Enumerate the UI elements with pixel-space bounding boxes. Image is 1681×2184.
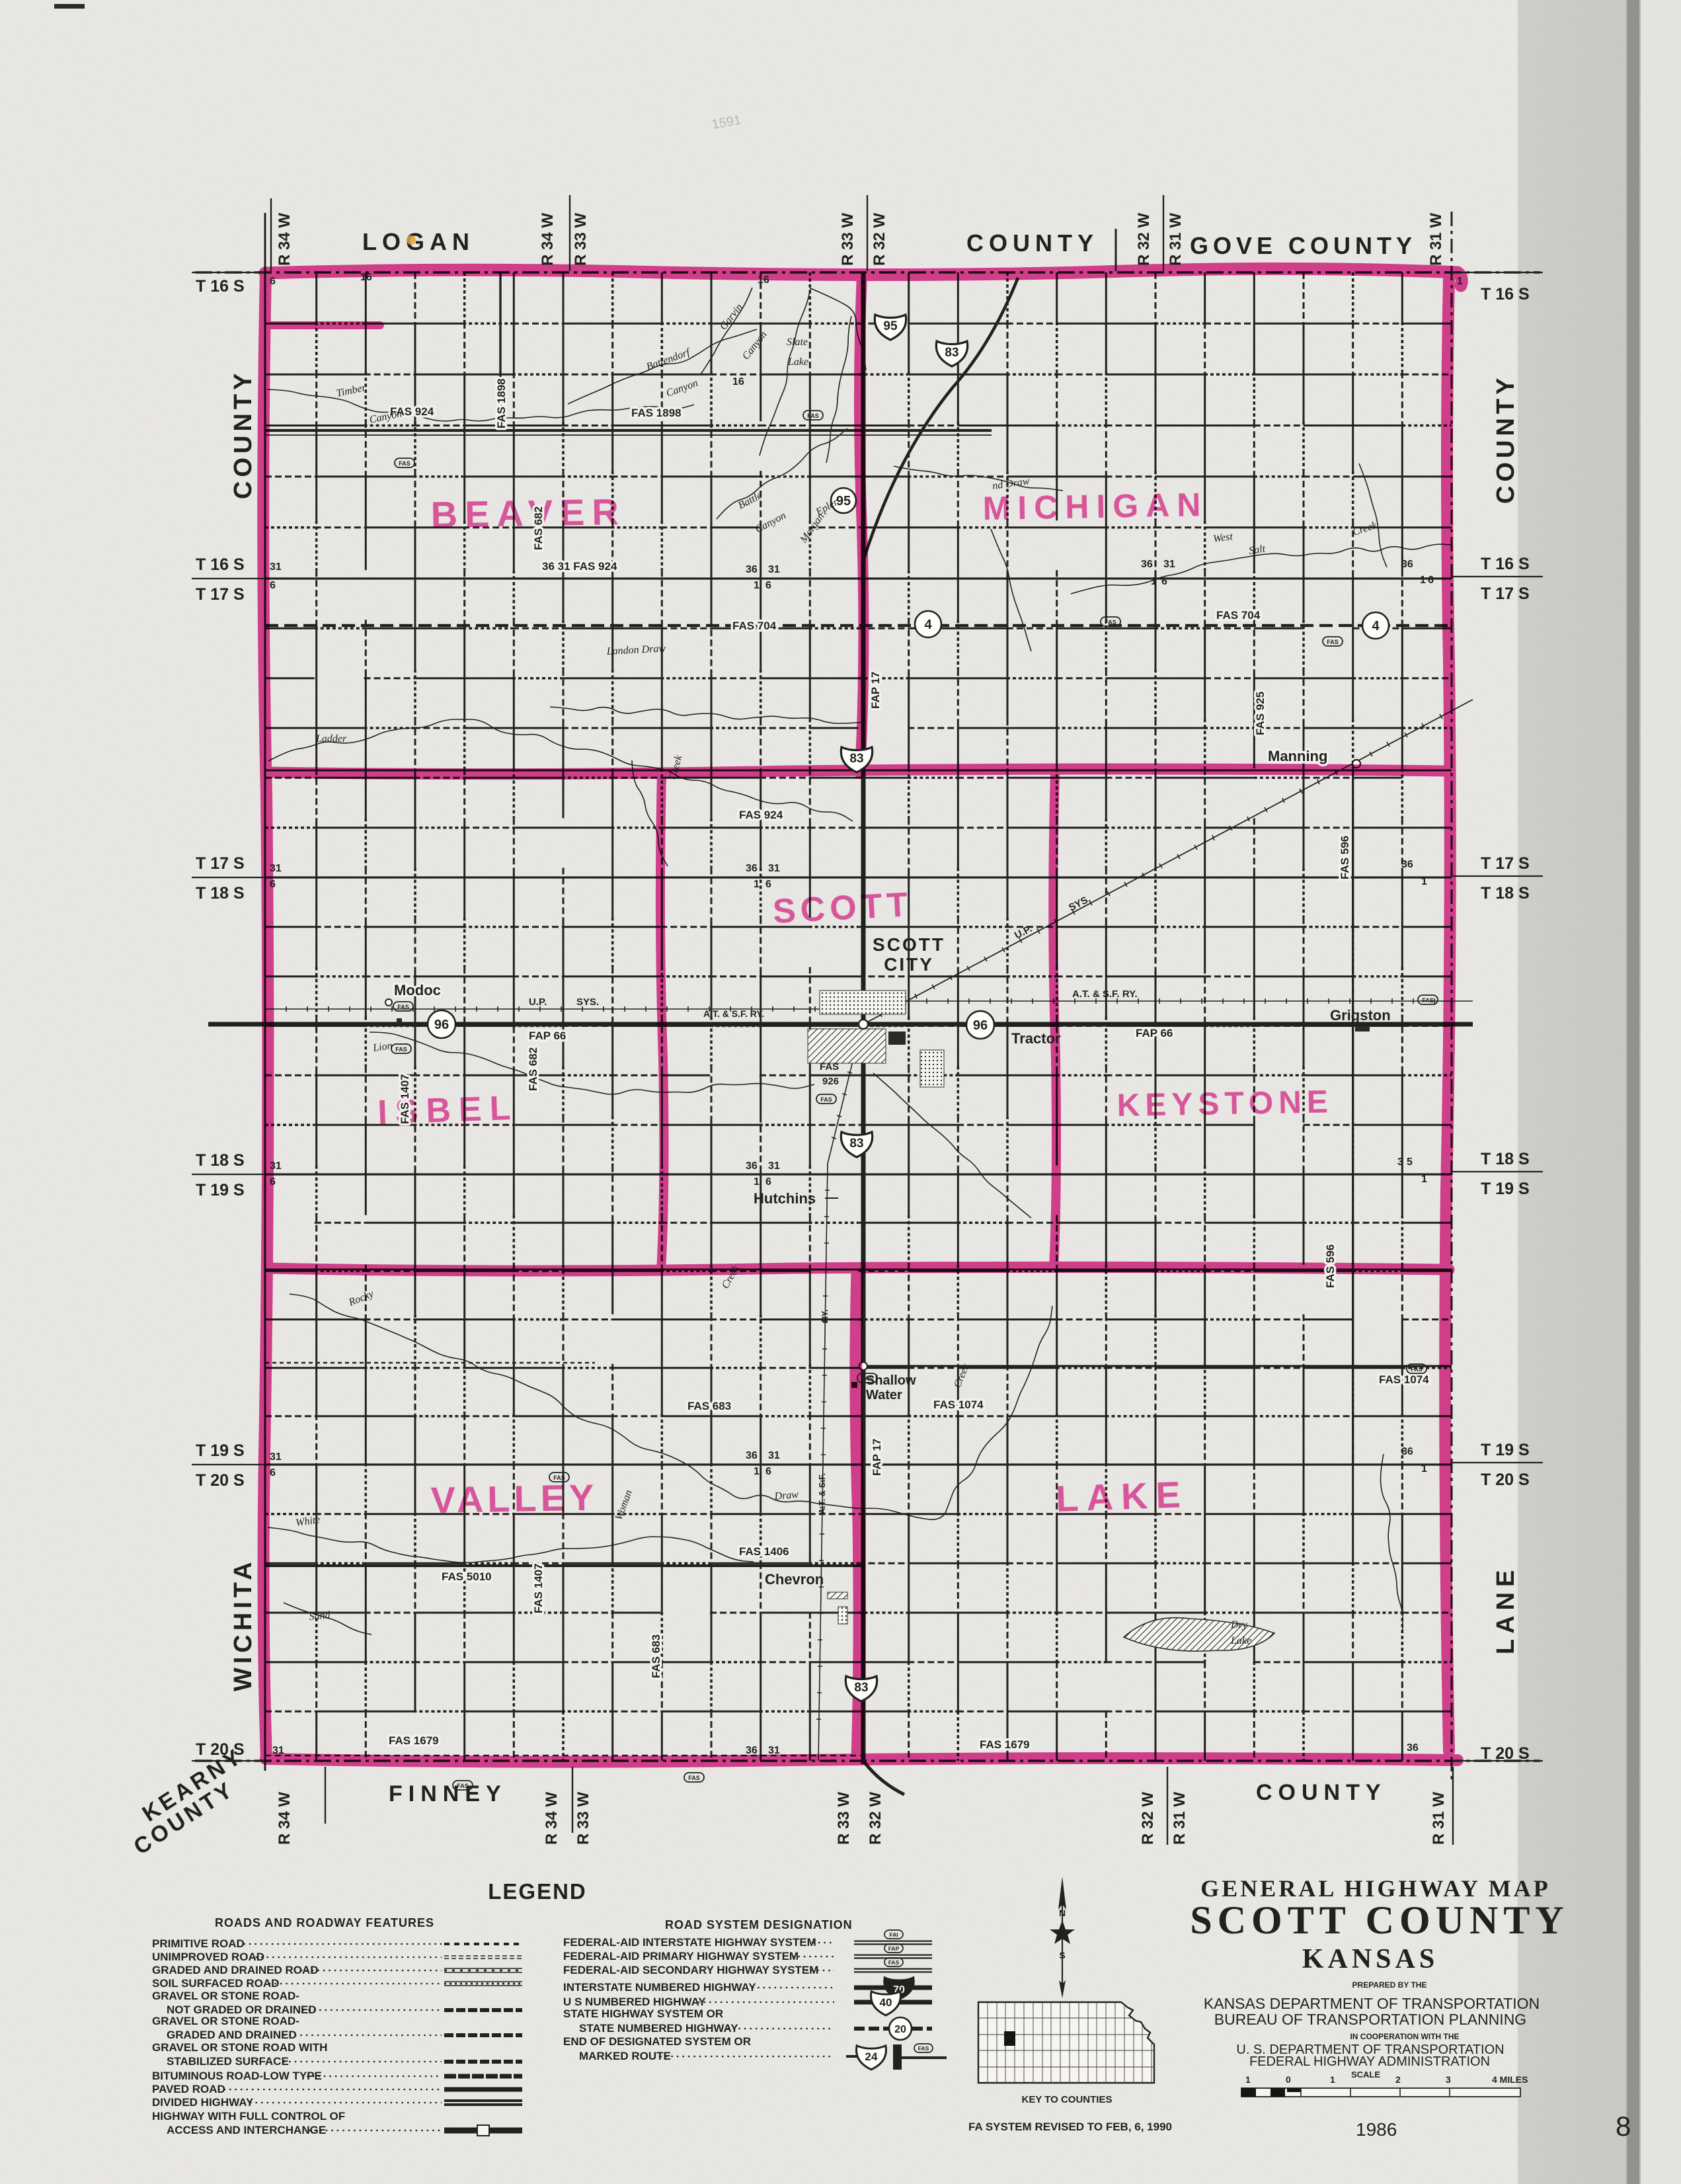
- svg-text:1: 1: [1330, 2074, 1335, 2085]
- svg-text:PREPARED BY THE: PREPARED BY THE: [1352, 1980, 1427, 1990]
- svg-text:KANSAS: KANSAS: [1302, 1944, 1438, 1974]
- svg-text:CITY: CITY: [884, 954, 934, 975]
- svg-text:HIGHWAY WITH FULL CONTROL OF: HIGHWAY WITH FULL CONTROL OF: [152, 2110, 345, 2123]
- svg-text:1: 1: [1421, 876, 1427, 887]
- svg-text:FAS 1074: FAS 1074: [1379, 1373, 1429, 1386]
- svg-text:SCOTT COUNTY: SCOTT COUNTY: [1190, 1898, 1569, 1942]
- svg-text:SYS.: SYS.: [576, 996, 599, 1008]
- svg-text:R 34 W: R 34 W: [539, 213, 557, 266]
- svg-text:Modoc: Modoc: [394, 982, 441, 998]
- svg-text:6: 6: [1428, 575, 1434, 586]
- svg-text:COUNTY: COUNTY: [966, 229, 1099, 257]
- svg-text:FAS 924: FAS 924: [739, 809, 783, 821]
- svg-text:36: 36: [746, 1160, 758, 1172]
- svg-text:T 20 S: T 20 S: [1481, 1744, 1530, 1763]
- svg-text:36: 36: [1401, 1446, 1413, 1457]
- svg-text:T 16 S: T 16 S: [196, 555, 245, 574]
- svg-text:16: 16: [758, 274, 769, 286]
- svg-text:SOIL SURFACED ROAD: SOIL SURFACED ROAD: [152, 1977, 279, 1990]
- svg-text:T 17 S: T 17 S: [1481, 854, 1530, 873]
- svg-text:FAS 925: FAS 925: [1254, 692, 1267, 735]
- svg-text:Water: Water: [866, 1388, 902, 1402]
- svg-text:96: 96: [434, 1018, 449, 1032]
- svg-text:FAS 683: FAS 683: [687, 1400, 731, 1412]
- svg-text:36 31 FAS 924: 36 31 FAS 924: [542, 560, 617, 573]
- svg-text:DIVIDED HIGHWAY: DIVIDED HIGHWAY: [152, 2096, 254, 2109]
- svg-text:GRAVEL OR STONE ROAD WITH: GRAVEL OR STONE ROAD WITH: [152, 2041, 327, 2054]
- svg-text:T 17 S: T 17 S: [1481, 585, 1530, 603]
- svg-text:FAS 704: FAS 704: [1216, 609, 1261, 622]
- svg-text:SCOTT: SCOTT: [873, 934, 945, 955]
- svg-text:LAKE: LAKE: [1055, 1473, 1189, 1519]
- svg-text:Draw: Draw: [773, 1489, 799, 1502]
- svg-text:4 MILES: 4 MILES: [1492, 2074, 1528, 2085]
- svg-text:T 18 S: T 18 S: [1481, 1150, 1530, 1168]
- svg-text:1: 1: [1457, 276, 1463, 287]
- svg-text:GRADED AND DRAINED: GRADED AND DRAINED: [167, 2029, 297, 2041]
- svg-text:T 18 S: T 18 S: [196, 884, 245, 903]
- svg-text:36: 36: [1141, 559, 1153, 570]
- svg-text:U S NUMBERED HIGHWAY: U S NUMBERED HIGHWAY: [563, 1996, 706, 2008]
- svg-text:R 34 W: R 34 W: [543, 1792, 561, 1845]
- svg-text:95: 95: [883, 319, 898, 333]
- svg-text:1: 1: [754, 879, 760, 890]
- svg-text:BUREAU OF TRANSPORTATION PL: BUREAU OF TRANSPORTATION PLANNING: [1214, 2011, 1526, 2028]
- svg-text:6: 6: [270, 1467, 276, 1478]
- svg-text:FAS: FAS: [918, 2045, 929, 2052]
- svg-text:VALLEY: VALLEY: [430, 1476, 598, 1521]
- svg-text:T 20 S: T 20 S: [1481, 1471, 1530, 1489]
- svg-text:STABILIZED SURFACE: STABILIZED SURFACE: [167, 2055, 289, 2068]
- svg-text:T 20 S: T 20 S: [196, 1740, 245, 1759]
- svg-text:20: 20: [894, 2024, 906, 2035]
- svg-text:31: 31: [270, 1160, 282, 1172]
- svg-text:SCOTT: SCOTT: [772, 885, 914, 931]
- svg-text:RY.: RY.: [820, 1309, 830, 1322]
- svg-text:3: 3: [1446, 2074, 1451, 2085]
- svg-text:FAP 17: FAP 17: [871, 1439, 883, 1476]
- svg-text:1: 1: [1245, 2074, 1251, 2085]
- svg-text:FAS 596: FAS 596: [1324, 1244, 1337, 1288]
- svg-text:STATE HIGHWAY SYSTEM OR: STATE HIGHWAY SYSTEM OR: [563, 2007, 723, 2020]
- svg-text:1: 1: [1420, 575, 1426, 586]
- svg-text:FEDERAL-AID PRIMARY HIGHWAY SY: FEDERAL-AID PRIMARY HIGHWAY SYSTEM: [563, 1950, 799, 1962]
- svg-text:FAS: FAS: [688, 1775, 700, 1781]
- svg-text:T 19 S: T 19 S: [1481, 1180, 1530, 1198]
- svg-text:FAS: FAS: [395, 1046, 407, 1053]
- svg-text:31: 31: [768, 1160, 780, 1172]
- svg-text:MICHIGAN: MICHIGAN: [982, 486, 1208, 527]
- svg-text:FAP 66: FAP 66: [1136, 1027, 1173, 1039]
- svg-text:6: 6: [765, 1466, 771, 1477]
- svg-text:Lake: Lake: [787, 356, 808, 368]
- svg-text:FAS 5010: FAS 5010: [442, 1570, 492, 1583]
- svg-text:GRAVEL OR STONE ROAD-: GRAVEL OR STONE ROAD-: [152, 1990, 299, 2002]
- svg-text:COUNTY: COUNTY: [229, 370, 257, 499]
- svg-text:ROADS AND ROADWAY FEATURES: ROADS AND ROADWAY FEATURES: [215, 1916, 434, 1929]
- svg-text:6: 6: [270, 1176, 276, 1188]
- svg-text:R 33 W: R 33 W: [572, 213, 590, 266]
- svg-text:FAI: FAI: [889, 1931, 898, 1938]
- svg-text:R 33 W: R 33 W: [835, 1792, 853, 1845]
- svg-text:31: 31: [768, 1450, 780, 1461]
- svg-text:31: 31: [768, 863, 780, 874]
- svg-text:BITUMINOUS ROAD-LOW TYPE: BITUMINOUS ROAD-LOW TYPE: [152, 2070, 322, 2082]
- svg-text:31: 31: [1163, 559, 1175, 570]
- svg-text:31: 31: [270, 863, 282, 874]
- svg-text:Grigston: Grigston: [1330, 1007, 1391, 1024]
- svg-text:ROAD SYSTEM DESIGNATION: ROAD SYSTEM DESIGNATION: [665, 1918, 853, 1931]
- svg-text:FAS 1679: FAS 1679: [980, 1738, 1030, 1751]
- svg-text:R 32 W: R 32 W: [867, 1792, 884, 1845]
- svg-text:Salt: Salt: [1248, 544, 1267, 557]
- svg-text:24: 24: [865, 2050, 878, 2063]
- svg-text:83: 83: [945, 346, 958, 360]
- svg-text:36: 36: [746, 1745, 758, 1756]
- svg-text:R 32 W: R 32 W: [1139, 1792, 1157, 1845]
- svg-text:FAS 682: FAS 682: [527, 1047, 539, 1091]
- svg-text:UNIMPROVED ROAD: UNIMPROVED ROAD: [152, 1951, 264, 1963]
- svg-text:FAS 1406: FAS 1406: [739, 1545, 789, 1558]
- svg-text:36: 36: [1407, 1742, 1419, 1754]
- svg-text:8: 8: [1616, 2111, 1631, 2142]
- svg-text:FAS: FAS: [820, 1096, 832, 1103]
- svg-text:Sand: Sand: [309, 1609, 331, 1623]
- svg-text:1986: 1986: [1356, 2119, 1397, 2140]
- svg-text:R 31 W: R 31 W: [1427, 213, 1445, 266]
- svg-text:KEY TO COUNTIES: KEY TO COUNTIES: [1022, 2094, 1113, 2105]
- svg-text:FAS: FAS: [861, 1375, 873, 1382]
- svg-text:31: 31: [270, 1451, 282, 1463]
- svg-text:FAS: FAS: [820, 1061, 839, 1072]
- svg-text:N: N: [1059, 1908, 1066, 1918]
- svg-text:6: 6: [270, 879, 276, 890]
- svg-text:40: 40: [880, 1996, 892, 2009]
- svg-text:COUNTY: COUNTY: [1492, 374, 1520, 504]
- svg-text:U.P.: U.P.: [529, 996, 547, 1008]
- svg-text:31: 31: [270, 561, 282, 573]
- svg-text:4: 4: [1372, 619, 1380, 633]
- svg-text:R 34 W: R 34 W: [276, 213, 293, 266]
- svg-text:1: 1: [754, 580, 760, 591]
- svg-text:FAP: FAP: [888, 1945, 900, 1952]
- svg-text:36: 36: [746, 863, 758, 874]
- svg-text:1: 1: [1151, 576, 1157, 587]
- svg-text:T 16 S: T 16 S: [1481, 285, 1530, 303]
- svg-text:Ladder: Ladder: [315, 733, 347, 745]
- svg-text:PAVED ROAD: PAVED ROAD: [152, 2083, 225, 2095]
- svg-text:T 17 S: T 17 S: [196, 854, 245, 873]
- svg-text:END OF DESIGNATED SYSTEM OR: END OF DESIGNATED SYSTEM OR: [563, 2035, 751, 2048]
- svg-text:16: 16: [732, 376, 744, 387]
- svg-text:FAS 1407: FAS 1407: [532, 1563, 545, 1613]
- svg-text:3: 3: [1397, 1156, 1403, 1168]
- svg-text:T 20 S: T 20 S: [196, 1471, 245, 1490]
- svg-text:S: S: [1059, 1950, 1065, 1961]
- svg-text:6: 6: [1161, 576, 1167, 587]
- svg-text:INTERSTATE NUMBERED HIGHWAY: INTERSTATE NUMBERED HIGHWAY: [563, 1981, 756, 1994]
- svg-text:T 18 S: T 18 S: [1481, 884, 1530, 903]
- svg-text:Shallow: Shallow: [866, 1373, 916, 1388]
- svg-text:FAS: FAS: [807, 413, 819, 419]
- svg-text:1: 1: [754, 1466, 760, 1477]
- svg-text:T 16 S: T 16 S: [1481, 555, 1530, 573]
- svg-text:36: 36: [746, 1450, 758, 1461]
- svg-text:GENERAL HIGHWAY MAP: GENERAL HIGHWAY MAP: [1200, 1875, 1550, 1902]
- svg-text:R 31 W: R 31 W: [1167, 213, 1185, 266]
- svg-text:FAS: FAS: [1411, 1366, 1423, 1373]
- svg-text:FAS: FAS: [1422, 997, 1434, 1004]
- svg-text:T 19 S: T 19 S: [196, 1181, 245, 1199]
- svg-text:83: 83: [849, 752, 863, 766]
- svg-text:36: 36: [1401, 859, 1413, 870]
- svg-text:GRADED AND DRAINED ROAD: GRADED AND DRAINED ROAD: [152, 1964, 319, 1976]
- svg-text:1: 1: [1421, 1463, 1427, 1475]
- svg-text:FA SYSTEM REVISED TO FEB, 6, 1: FA SYSTEM REVISED TO FEB, 6, 1990: [968, 2121, 1172, 2133]
- svg-text:FAS: FAS: [397, 1004, 409, 1010]
- svg-text:6: 6: [270, 276, 276, 287]
- svg-text:STATE NUMBERED HIGHWAY: STATE NUMBERED HIGHWAY: [579, 2022, 738, 2035]
- svg-text:6: 6: [765, 580, 771, 591]
- svg-text:FAS 683: FAS 683: [650, 1635, 662, 1678]
- svg-text:4: 4: [924, 618, 932, 632]
- svg-text:FAP 17: FAP 17: [869, 672, 882, 709]
- svg-text:FAS 704: FAS 704: [732, 620, 777, 632]
- svg-text:FEDERAL HIGHWAY ADMINISTRATI: FEDERAL HIGHWAY ADMINISTRATION: [1249, 2054, 1490, 2069]
- svg-text:96: 96: [973, 1018, 988, 1033]
- svg-text:FAS: FAS: [1105, 619, 1116, 626]
- svg-text:6: 6: [765, 1176, 771, 1188]
- svg-text:Lake: Lake: [1230, 1635, 1251, 1646]
- svg-text:1: 1: [754, 1176, 760, 1188]
- svg-text:FAS 1898: FAS 1898: [495, 378, 508, 428]
- svg-text:R 34 W: R 34 W: [276, 1792, 293, 1845]
- svg-text:IN COOPERATION WITH THE: IN COOPERATION WITH THE: [1350, 2032, 1459, 2041]
- svg-text:Dry: Dry: [1230, 1619, 1248, 1631]
- svg-text:LANE: LANE: [1492, 1565, 1520, 1654]
- svg-text:6: 6: [270, 580, 276, 591]
- svg-text:Manning: Manning: [1268, 748, 1327, 764]
- svg-text:Tractor: Tractor: [1011, 1030, 1061, 1047]
- svg-text:Hutchins: Hutchins: [754, 1190, 816, 1207]
- svg-text:FAS 1898: FAS 1898: [631, 407, 682, 419]
- svg-text:FINNEY: FINNEY: [389, 1781, 507, 1806]
- svg-text:LEGEND: LEGEND: [488, 1879, 587, 1904]
- svg-text:A.T. & S.F. RY.: A.T. & S.F. RY.: [703, 1008, 764, 1019]
- svg-text:Chevron: Chevron: [765, 1571, 824, 1588]
- svg-text:T 19 S: T 19 S: [1481, 1441, 1530, 1459]
- svg-text:KEYSTONE: KEYSTONE: [1116, 1084, 1333, 1123]
- svg-text:R 31 W: R 31 W: [1430, 1792, 1448, 1845]
- svg-text:MARKED ROUTE: MARKED ROUTE: [579, 2050, 671, 2062]
- svg-text:FAS: FAS: [553, 1475, 565, 1481]
- svg-text:A.T. & S.F. RY.: A.T. & S.F. RY.: [1072, 989, 1138, 1000]
- svg-text:R 31 W: R 31 W: [1171, 1792, 1189, 1845]
- svg-text:R 32 W: R 32 W: [871, 213, 888, 266]
- svg-text:GOVE COUNTY: GOVE COUNTY: [1190, 232, 1417, 259]
- svg-text:KANSAS DEPARTMENT OF TRANSP: KANSAS DEPARTMENT OF TRANSPORTATION: [1204, 1995, 1540, 2012]
- svg-text:FAS 596: FAS 596: [1339, 836, 1351, 879]
- svg-text:FAS 1407: FAS 1407: [399, 1074, 411, 1124]
- svg-text:FEDERAL-AID SECONDARY HIGHWAY: FEDERAL-AID SECONDARY HIGHWAY SYSTEM: [563, 1964, 818, 1976]
- svg-text:31: 31: [768, 564, 780, 575]
- svg-text:T 18 S: T 18 S: [196, 1151, 245, 1170]
- svg-text:FEDERAL-AID INTERSTATE HIGHWAY: FEDERAL-AID INTERSTATE HIGHWAY SYSTEM: [563, 1936, 816, 1949]
- svg-text:BEAVER: BEAVER: [430, 491, 626, 536]
- svg-text:PRIMITIVE ROAD: PRIMITIVE ROAD: [152, 1937, 245, 1950]
- svg-text:83: 83: [849, 1137, 863, 1151]
- svg-text:FAS: FAS: [399, 460, 410, 467]
- svg-text:T 16 S: T 16 S: [196, 277, 245, 296]
- svg-text:LOGAN: LOGAN: [362, 228, 475, 255]
- svg-text:Slate: Slate: [787, 337, 808, 348]
- svg-text:FAS: FAS: [1327, 639, 1339, 645]
- svg-text:FAS 1679: FAS 1679: [389, 1734, 439, 1747]
- svg-text:2: 2: [1395, 2074, 1401, 2085]
- svg-text:926: 926: [822, 1076, 839, 1087]
- svg-text:83: 83: [854, 1681, 868, 1695]
- svg-text:5: 5: [1407, 1156, 1413, 1168]
- svg-text:COUNTY: COUNTY: [1256, 1780, 1387, 1805]
- svg-text:FAP 66: FAP 66: [529, 1030, 566, 1042]
- svg-text:R 32 W: R 32 W: [1135, 213, 1153, 266]
- svg-text:FAS: FAS: [888, 1959, 900, 1966]
- svg-text:WICHITA: WICHITA: [229, 1558, 257, 1691]
- svg-text:GRAVEL OR STONE ROAD-: GRAVEL OR STONE ROAD-: [152, 2015, 299, 2027]
- svg-text:16: 16: [360, 272, 372, 283]
- svg-text:ACCESS AND INTERCHANGE: ACCESS AND INTERCHANGE: [167, 2124, 326, 2136]
- svg-text:31: 31: [272, 1745, 284, 1756]
- svg-text:T 17 S: T 17 S: [196, 585, 245, 604]
- svg-text:1: 1: [1421, 1174, 1427, 1185]
- svg-text:R 33 W: R 33 W: [574, 1792, 592, 1845]
- svg-text:36: 36: [746, 564, 758, 575]
- svg-text:6: 6: [765, 879, 771, 890]
- svg-text:31: 31: [768, 1745, 780, 1756]
- svg-text:R 33 W: R 33 W: [839, 213, 857, 266]
- svg-text:SCALE: SCALE: [1351, 2070, 1380, 2080]
- svg-text:A.T. & S.F.: A.T. & S.F.: [817, 1473, 827, 1514]
- svg-text:0: 0: [1286, 2074, 1291, 2085]
- svg-text:FAS 682: FAS 682: [532, 506, 545, 550]
- svg-text:T 19 S: T 19 S: [196, 1441, 245, 1460]
- svg-text:FAS: FAS: [457, 1783, 469, 1789]
- svg-text:36: 36: [1401, 559, 1413, 570]
- svg-text:FAS 1074: FAS 1074: [933, 1398, 984, 1411]
